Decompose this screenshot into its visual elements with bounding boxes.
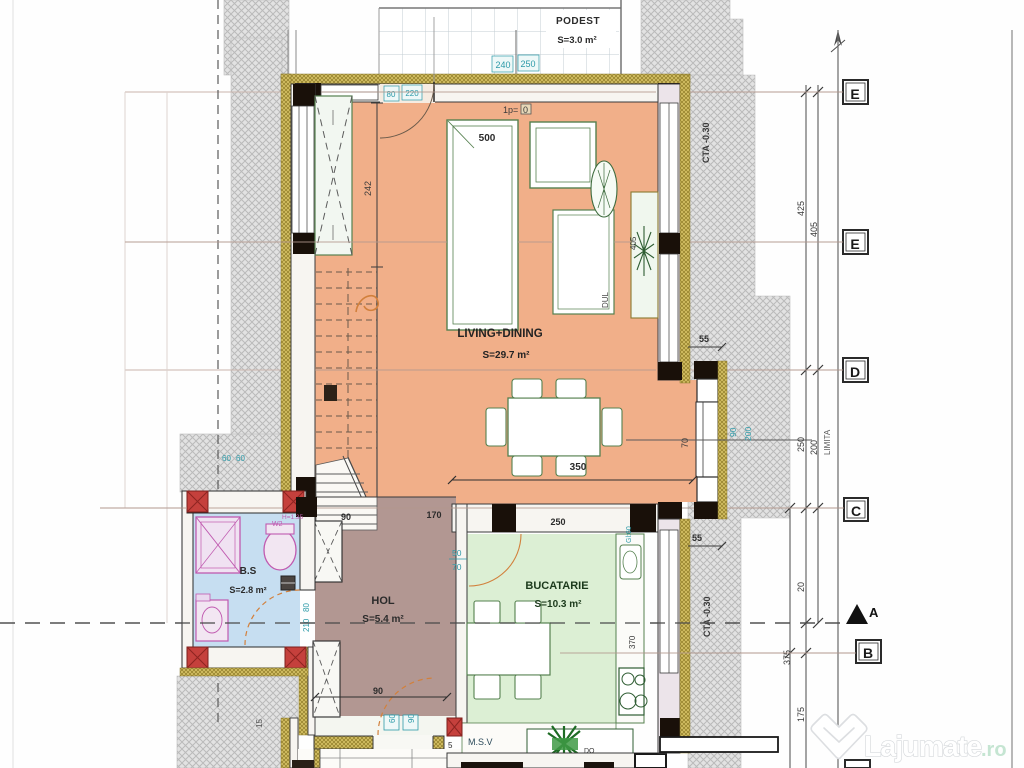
svg-text:A: A (869, 605, 879, 620)
svg-text:15: 15 (255, 719, 264, 728)
svg-text:220: 220 (405, 89, 419, 98)
svg-text:W2: W2 (272, 521, 283, 528)
svg-text:E: E (850, 86, 859, 102)
svg-text:50: 50 (452, 548, 462, 558)
svg-text:60: 60 (388, 714, 397, 723)
svg-text:HOL: HOL (371, 595, 395, 607)
svg-text:90: 90 (728, 427, 738, 437)
svg-text:250: 250 (550, 517, 565, 527)
svg-text:S=10.3 m²: S=10.3 m² (535, 599, 583, 610)
svg-text:20: 20 (796, 582, 806, 592)
svg-text:5: 5 (448, 741, 453, 750)
svg-text:60: 60 (222, 454, 231, 463)
svg-text:500: 500 (479, 133, 496, 144)
svg-text:CTA -0.30: CTA -0.30 (702, 596, 712, 637)
svg-text:M.S.V: M.S.V (468, 737, 493, 747)
svg-text:0: 0 (523, 105, 528, 115)
svg-text:90: 90 (373, 686, 383, 696)
svg-text:Lajumate: Lajumate (864, 731, 981, 763)
svg-text:200: 200 (809, 440, 819, 455)
svg-text:C: C (851, 503, 861, 519)
svg-text:370: 370 (628, 635, 637, 649)
svg-text:LIVING+DINING: LIVING+DINING (457, 328, 542, 340)
svg-text:DUL: DUL (601, 291, 610, 308)
svg-text:PODEST: PODEST (556, 16, 600, 27)
svg-text:1p=: 1p= (503, 105, 518, 115)
svg-text:S=29.7 m²: S=29.7 m² (483, 350, 531, 361)
svg-text:175: 175 (796, 707, 806, 722)
svg-text:70: 70 (452, 562, 462, 572)
svg-text:240: 240 (495, 60, 510, 70)
svg-text:425: 425 (796, 201, 806, 216)
svg-text:60: 60 (236, 454, 245, 463)
svg-text:55: 55 (699, 334, 709, 344)
svg-text:55: 55 (692, 533, 702, 543)
svg-text:250: 250 (796, 437, 806, 452)
svg-text:B: B (863, 645, 873, 661)
svg-text:CTA -0.30: CTA -0.30 (701, 122, 711, 163)
svg-text:405: 405 (629, 236, 638, 250)
svg-text:.ro: .ro (981, 739, 1007, 761)
svg-text:242: 242 (363, 181, 373, 196)
svg-text:210: 210 (302, 618, 311, 632)
svg-text:H=1.35: H=1.35 (282, 514, 304, 521)
svg-text:350: 350 (570, 462, 587, 473)
svg-text:80: 80 (302, 603, 311, 612)
svg-text:E: E (850, 236, 859, 252)
svg-text:200: 200 (743, 427, 753, 441)
svg-text:375: 375 (782, 650, 792, 665)
svg-text:B.S: B.S (240, 566, 257, 577)
svg-text:170: 170 (426, 510, 441, 520)
svg-text:90: 90 (407, 714, 416, 723)
svg-text:80: 80 (387, 90, 396, 99)
svg-text:LIMITA: LIMITA (823, 429, 832, 455)
svg-text:405: 405 (809, 222, 819, 237)
svg-text:BUCATARIE: BUCATARIE (525, 580, 588, 592)
svg-text:250: 250 (520, 59, 535, 69)
svg-text:D: D (850, 364, 860, 380)
svg-text:S=3.0 m²: S=3.0 m² (557, 35, 596, 46)
svg-text:S=2.8 m²: S=2.8 m² (229, 585, 266, 595)
svg-text:70: 70 (680, 438, 690, 448)
svg-text:Gl:60: Gl:60 (626, 526, 633, 543)
